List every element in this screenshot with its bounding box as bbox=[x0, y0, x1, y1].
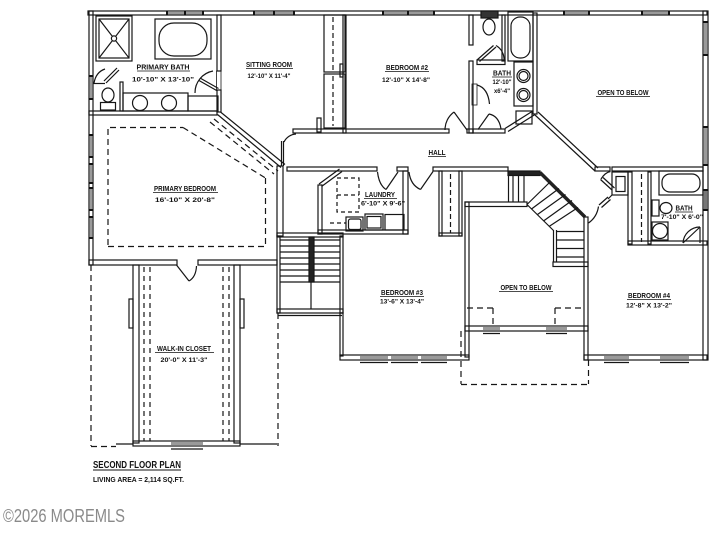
svg-text:x6'-4": x6'-4" bbox=[494, 88, 510, 95]
svg-text:BEDROOM #2: BEDROOM #2 bbox=[386, 65, 428, 72]
svg-text:12'-10": 12'-10" bbox=[493, 79, 512, 86]
svg-text:7'-10" X 6'-0": 7'-10" X 6'-0" bbox=[661, 214, 703, 221]
svg-text:WALK-IN CLOSET: WALK-IN CLOSET bbox=[157, 346, 212, 353]
svg-text:SITTING ROOM: SITTING ROOM bbox=[246, 62, 292, 69]
svg-text:OPEN TO BELOW: OPEN TO BELOW bbox=[501, 285, 552, 292]
svg-text:BEDROOM #4: BEDROOM #4 bbox=[628, 293, 670, 300]
svg-text:PRIMARY BATH: PRIMARY BATH bbox=[137, 65, 190, 72]
svg-text:BATH: BATH bbox=[676, 206, 693, 213]
svg-text:10'-10" X 13'-10": 10'-10" X 13'-10" bbox=[132, 77, 194, 84]
svg-text:BATH: BATH bbox=[493, 71, 511, 78]
svg-text:HALL: HALL bbox=[429, 150, 447, 157]
svg-text:LAUNDRY: LAUNDRY bbox=[365, 192, 395, 199]
svg-text:16'-10" X 20'-8": 16'-10" X 20'-8" bbox=[155, 197, 215, 204]
svg-text:12'-10" X 11'-4": 12'-10" X 11'-4" bbox=[248, 73, 291, 80]
svg-text:OPEN TO BELOW: OPEN TO BELOW bbox=[598, 90, 649, 97]
svg-text:LIVING AREA = 2,114 SQ.FT.: LIVING AREA = 2,114 SQ.FT. bbox=[93, 477, 184, 484]
svg-text:BEDROOM #3: BEDROOM #3 bbox=[381, 290, 423, 297]
svg-text:PRIMARY BEDROOM: PRIMARY BEDROOM bbox=[154, 186, 216, 193]
svg-text:SECOND FLOOR PLAN: SECOND FLOOR PLAN bbox=[93, 460, 181, 471]
svg-text:6'-10" X 9'-6": 6'-10" X 9'-6" bbox=[361, 201, 405, 208]
svg-text:20'-0" X 11'-3": 20'-0" X 11'-3" bbox=[161, 357, 208, 364]
svg-text:©2026 MOREMLS: ©2026 MOREMLS bbox=[3, 506, 125, 526]
svg-text:12'-10" X 14'-8": 12'-10" X 14'-8" bbox=[382, 77, 430, 84]
svg-text:12'-8" X 13'-2": 12'-8" X 13'-2" bbox=[626, 303, 672, 310]
svg-text:13'-6" X 13'-4": 13'-6" X 13'-4" bbox=[380, 299, 424, 306]
